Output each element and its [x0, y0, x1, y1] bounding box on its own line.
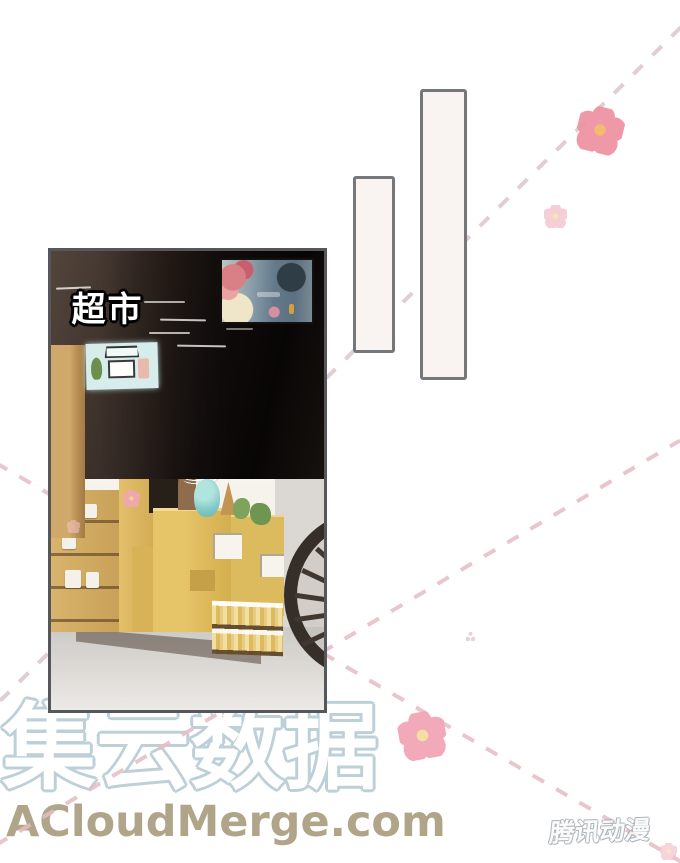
wheel-spoke [295, 605, 327, 622]
sign-box-graphic [138, 358, 149, 378]
ceiling-light [160, 319, 206, 322]
watermark-url: ACloudMerge.com [6, 797, 446, 847]
flower-icon [572, 102, 628, 158]
sign-counter-graphic [108, 360, 136, 378]
display-cubby [213, 533, 242, 558]
comic-panel-supermarket: 超市 [48, 248, 327, 713]
shelf-product [65, 570, 81, 588]
potted-plant [250, 503, 270, 526]
teal-vase [194, 479, 220, 518]
flower-icon [67, 520, 80, 533]
speech-bubble-vertical-small [353, 176, 395, 353]
shelf-product [84, 504, 98, 518]
ceiling-light [149, 332, 190, 334]
flower-icon [395, 708, 449, 762]
display-cubby [260, 554, 285, 577]
flower-icon [123, 490, 140, 507]
flower-icon [660, 843, 677, 860]
sign-plant-graphic [91, 357, 102, 379]
sparkle-icon [466, 632, 475, 641]
wood-pillar [51, 345, 85, 538]
wheel-spoke [301, 605, 327, 647]
wheel-spoke [301, 568, 327, 610]
comic-page: 集云数据 ACloudMerge.com [0, 0, 680, 863]
sign-lamp [105, 345, 140, 358]
wheel-spoke [295, 593, 327, 610]
ad-screen [220, 258, 314, 325]
gold-ornament [289, 304, 294, 314]
hanging-sign [86, 342, 160, 390]
shelf-product [86, 572, 98, 588]
speech-bubble-vertical-tall [420, 89, 467, 380]
publisher-logo: 腾讯动漫 [548, 810, 652, 849]
ceiling-light [226, 328, 253, 330]
ceiling-light [177, 345, 226, 348]
flower-icon [544, 205, 567, 228]
watermark-text: 集云数据 [2, 700, 378, 799]
panel-label: 超市 [71, 282, 143, 331]
ceiling-light [144, 301, 185, 303]
display-cubby-shaded [190, 570, 215, 591]
ad-screen-caption [257, 292, 280, 296]
jar-shelf [212, 601, 283, 656]
